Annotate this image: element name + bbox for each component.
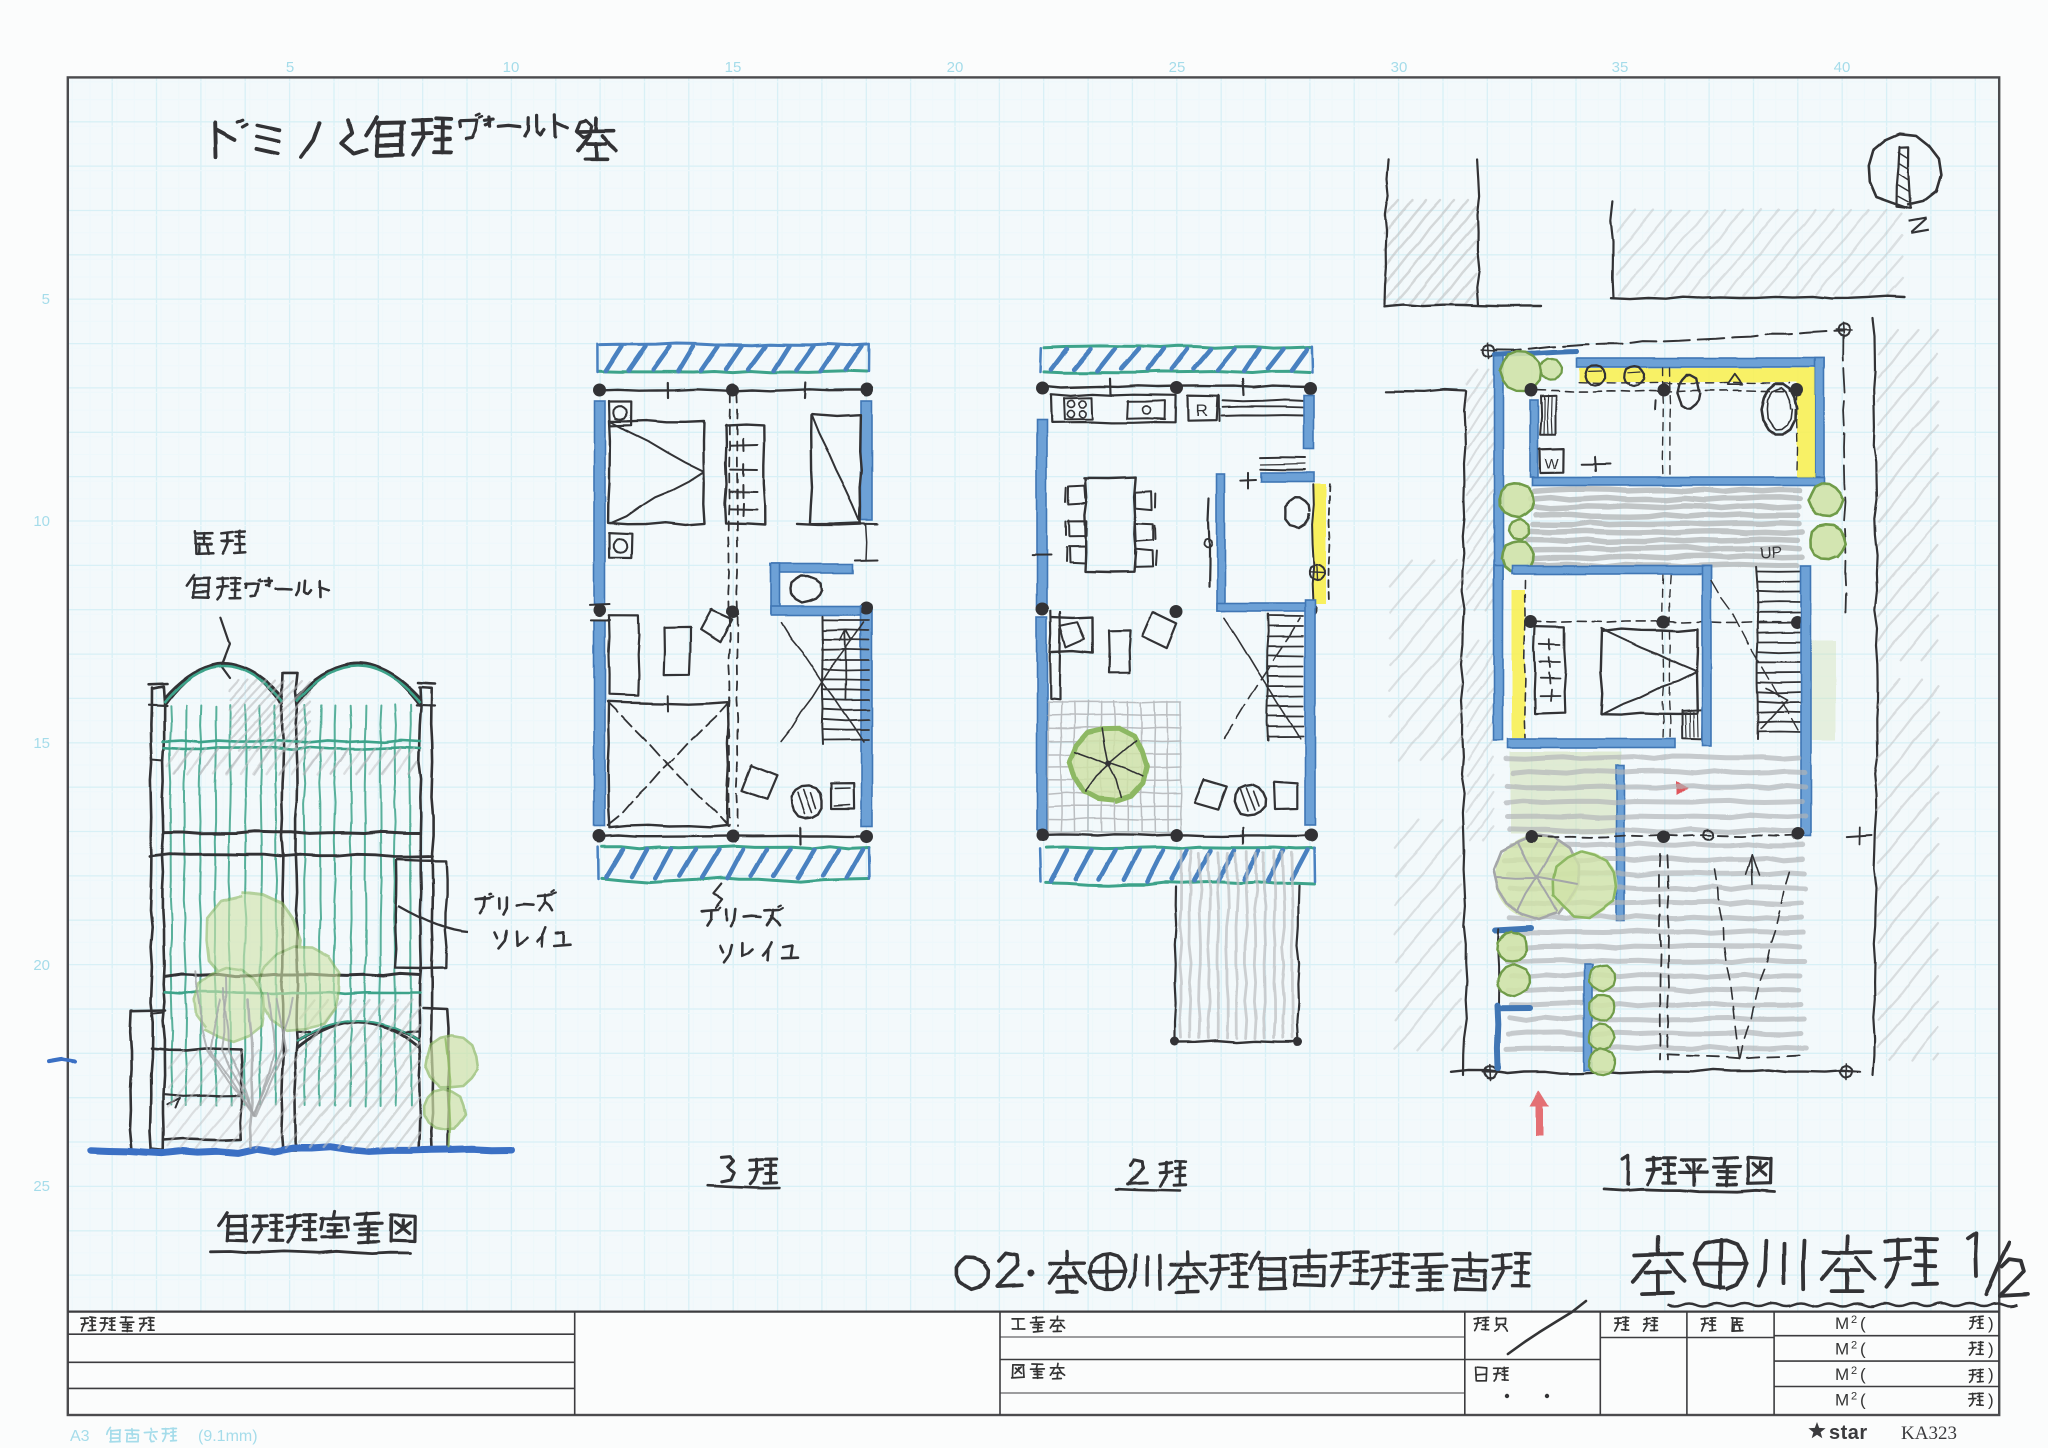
svg-text:2: 2 — [1851, 1365, 1857, 1377]
svg-text:5: 5 — [286, 59, 294, 76]
svg-text:R: R — [1195, 401, 1207, 420]
svg-text:(: ( — [1860, 1391, 1866, 1410]
svg-text:(: ( — [1860, 1340, 1866, 1359]
svg-text:25: 25 — [33, 1178, 50, 1195]
svg-text:): ) — [1988, 1340, 1994, 1359]
svg-text:): ) — [1988, 1391, 1994, 1410]
svg-text:): ) — [1988, 1365, 1994, 1384]
svg-text:UP: UP — [1760, 544, 1783, 563]
svg-text:(9.1mm): (9.1mm) — [198, 1428, 258, 1445]
svg-text:(: ( — [1860, 1365, 1866, 1384]
svg-text:10: 10 — [503, 59, 520, 76]
svg-text:30: 30 — [1391, 59, 1408, 76]
svg-text:10: 10 — [33, 513, 50, 530]
svg-text:15: 15 — [33, 735, 50, 752]
svg-text:20: 20 — [33, 957, 50, 974]
svg-text:2: 2 — [1851, 1340, 1857, 1352]
svg-text:W: W — [1545, 455, 1560, 472]
svg-text:M: M — [1835, 1391, 1849, 1410]
svg-text:5: 5 — [42, 291, 50, 308]
svg-text:): ) — [1988, 1314, 1994, 1333]
svg-text:M: M — [1835, 1314, 1849, 1333]
svg-text:M: M — [1835, 1365, 1849, 1384]
svg-text:20: 20 — [947, 59, 964, 76]
svg-text:15: 15 — [725, 59, 742, 76]
svg-text:KA323: KA323 — [1901, 1423, 1957, 1444]
svg-text:star: star — [1829, 1422, 1868, 1444]
svg-text:M: M — [1835, 1340, 1849, 1359]
svg-text:2: 2 — [1851, 1391, 1857, 1403]
svg-text:2: 2 — [1851, 1314, 1857, 1326]
svg-text:25: 25 — [1169, 59, 1186, 76]
svg-text:40: 40 — [1834, 59, 1851, 76]
svg-text:35: 35 — [1612, 59, 1629, 76]
svg-text:A3: A3 — [70, 1428, 90, 1445]
svg-text:(: ( — [1860, 1314, 1866, 1333]
